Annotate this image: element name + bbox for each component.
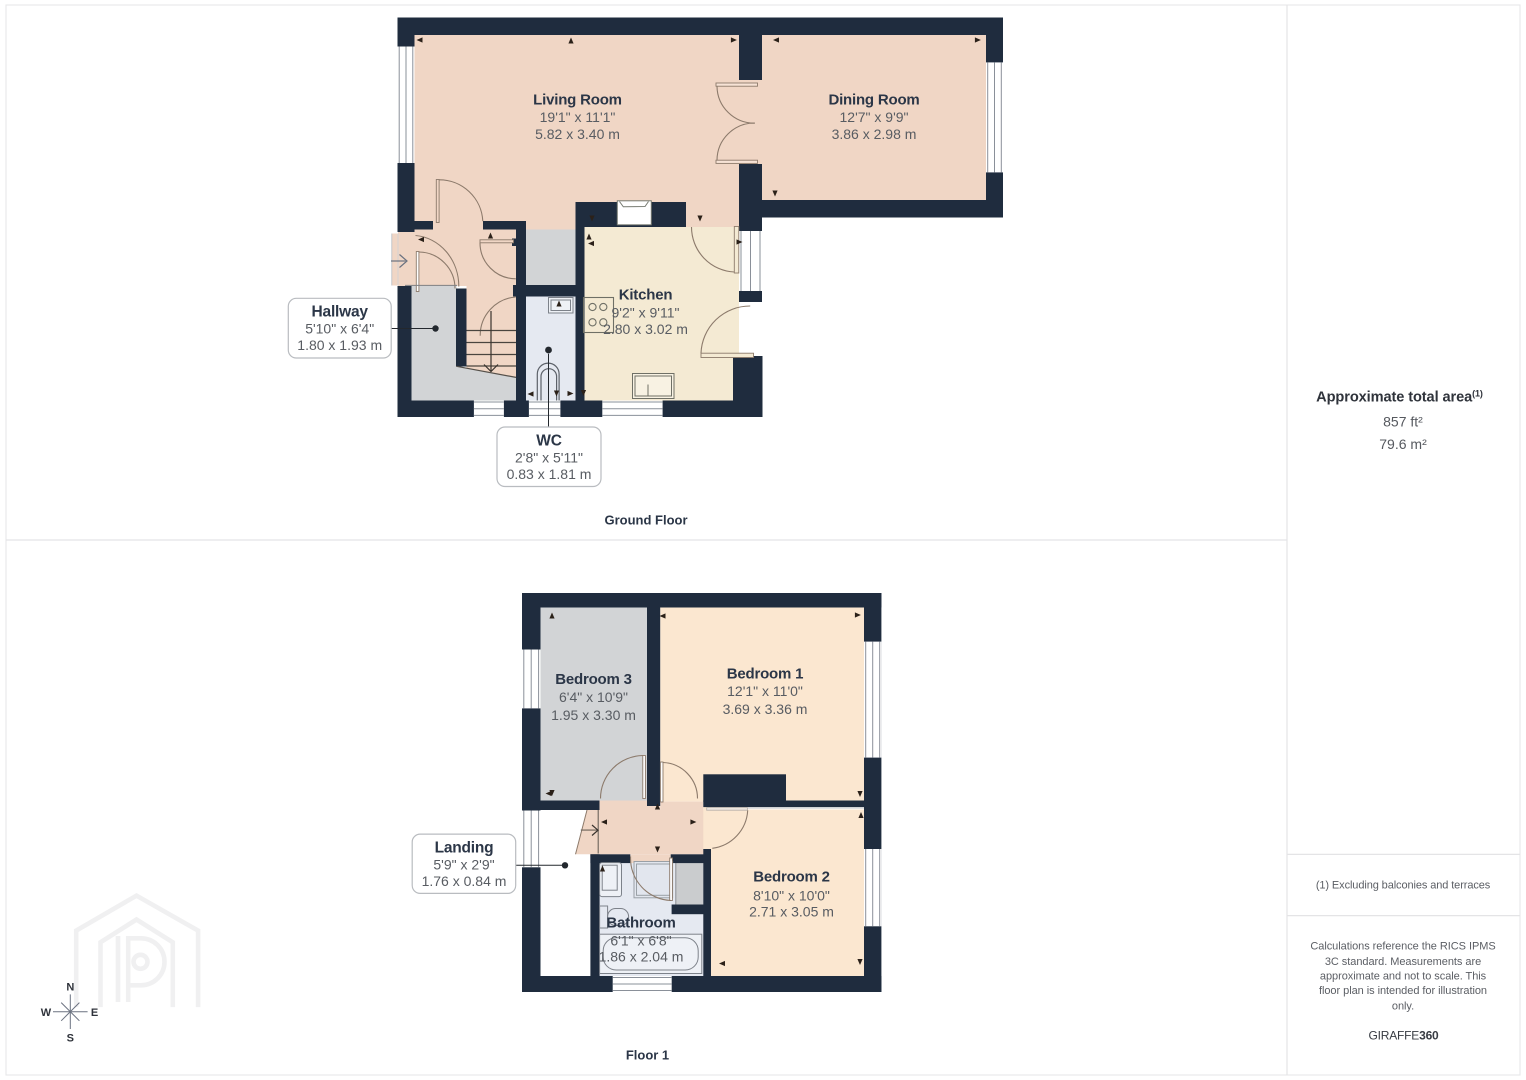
svg-text:3.86 x 2.98 m: 3.86 x 2.98 m [832, 126, 917, 142]
svg-text:Living Room: Living Room [533, 92, 622, 109]
svg-text:1.76 x 0.84 m: 1.76 x 0.84 m [422, 873, 507, 889]
svg-text:0.83 x 1.81 m: 0.83 x 1.81 m [507, 466, 592, 482]
svg-text:Hallway: Hallway [312, 304, 369, 321]
svg-text:5'10" x 6'4": 5'10" x 6'4" [305, 321, 374, 337]
svg-text:Bedroom 1: Bedroom 1 [727, 665, 804, 682]
svg-text:Ground Floor: Ground Floor [604, 513, 687, 528]
svg-text:WC: WC [536, 433, 561, 450]
svg-text:approximate and not to scale.: approximate and not to scale. This [1320, 970, 1487, 982]
svg-text:9'2" x 9'11": 9'2" x 9'11" [612, 304, 680, 320]
svg-text:Floor 1: Floor 1 [626, 1048, 669, 1063]
svg-text:5.82 x 3.40 m: 5.82 x 3.40 m [535, 126, 620, 142]
svg-text:6'4" x 10'9": 6'4" x 10'9" [559, 689, 628, 705]
svg-text:Landing: Landing [435, 839, 494, 856]
svg-text:Approximate total area(1): Approximate total area(1) [1316, 389, 1483, 406]
svg-text:E: E [91, 1007, 98, 1019]
svg-text:12'7" x 9'9": 12'7" x 9'9" [840, 109, 909, 125]
svg-text:S: S [67, 1033, 74, 1045]
svg-text:GIRAFFE360: GIRAFFE360 [1368, 1029, 1439, 1043]
svg-text:3.69 x 3.36 m: 3.69 x 3.36 m [723, 701, 808, 717]
svg-text:12'1" x 11'0": 12'1" x 11'0" [727, 683, 803, 699]
svg-text:19'1" x 11'1": 19'1" x 11'1" [540, 109, 616, 125]
svg-text:1.95 x 3.30 m: 1.95 x 3.30 m [551, 707, 636, 723]
svg-text:only.: only. [1392, 1000, 1414, 1012]
svg-text:N: N [66, 982, 74, 994]
svg-text:(1) Excluding balconies and te: (1) Excluding balconies and terraces [1316, 879, 1491, 891]
svg-text:floor plan is intended for ill: floor plan is intended for illustration [1319, 985, 1487, 997]
svg-text:Kitchen: Kitchen [619, 287, 673, 304]
svg-text:Bedroom 3: Bedroom 3 [555, 671, 632, 688]
svg-text:3C standard. Measurements are: 3C standard. Measurements are [1325, 956, 1481, 968]
svg-text:6'1" x 6'8": 6'1" x 6'8" [610, 933, 671, 949]
svg-text:W: W [41, 1007, 52, 1019]
svg-text:8'10" x 10'0": 8'10" x 10'0" [753, 888, 830, 904]
svg-text:857 ft²: 857 ft² [1383, 414, 1423, 430]
svg-text:1.86 x 2.04 m: 1.86 x 2.04 m [599, 949, 684, 965]
svg-text:79.6 m²: 79.6 m² [1379, 436, 1427, 452]
svg-text:5'9" x 2'9": 5'9" x 2'9" [433, 856, 494, 872]
svg-text:2'8" x 5'11": 2'8" x 5'11" [515, 450, 583, 466]
svg-text:Dining Room: Dining Room [828, 92, 919, 109]
svg-text:1.80 x 1.93 m: 1.80 x 1.93 m [297, 337, 382, 353]
svg-text:Bathroom: Bathroom [606, 915, 675, 932]
svg-text:Calculations reference the RIC: Calculations reference the RICS IPMS [1310, 940, 1495, 952]
svg-text:2.80 x 3.02 m: 2.80 x 3.02 m [603, 321, 688, 337]
svg-text:Bedroom 2: Bedroom 2 [753, 869, 830, 886]
svg-text:2.71 x 3.05 m: 2.71 x 3.05 m [749, 904, 834, 920]
